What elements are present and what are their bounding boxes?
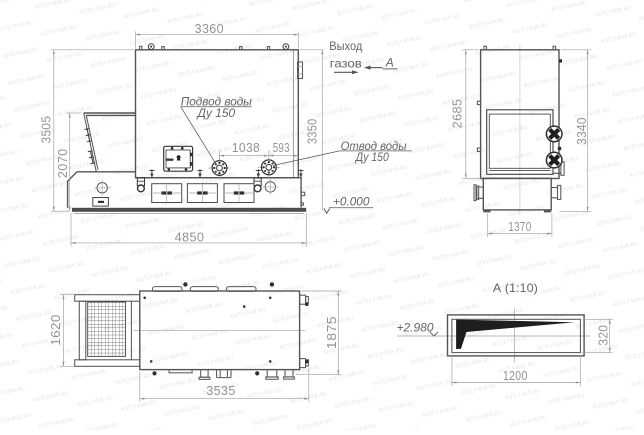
svg-text:3360: 3360 bbox=[195, 21, 224, 36]
svg-text:А: А bbox=[385, 56, 394, 70]
svg-text:3535: 3535 bbox=[206, 383, 235, 398]
svg-text:2070: 2070 bbox=[55, 148, 70, 178]
svg-text:1370: 1370 bbox=[508, 219, 531, 234]
svg-text:Ду 150: Ду 150 bbox=[196, 106, 236, 120]
svg-text:+2.980: +2.980 bbox=[397, 320, 434, 334]
svg-text:3340: 3340 bbox=[574, 117, 589, 145]
svg-text:Выход: Выход bbox=[329, 39, 362, 53]
svg-text:1620: 1620 bbox=[48, 314, 63, 345]
svg-text:Ду 150: Ду 150 bbox=[354, 150, 389, 164]
svg-text:3350: 3350 bbox=[305, 119, 320, 145]
svg-text:1200: 1200 bbox=[503, 368, 528, 383]
svg-text:593: 593 bbox=[273, 140, 290, 155]
svg-text:газов: газов bbox=[330, 57, 362, 71]
svg-text:1038: 1038 bbox=[232, 140, 260, 155]
svg-text:2685: 2685 bbox=[449, 99, 464, 129]
svg-text:4850: 4850 bbox=[175, 230, 205, 245]
svg-text:А (1:10): А (1:10) bbox=[493, 281, 538, 295]
svg-text:1875: 1875 bbox=[324, 316, 339, 349]
svg-text:+0.000: +0.000 bbox=[333, 194, 370, 208]
svg-text:3505: 3505 bbox=[38, 116, 53, 144]
svg-text:320: 320 bbox=[595, 325, 610, 346]
